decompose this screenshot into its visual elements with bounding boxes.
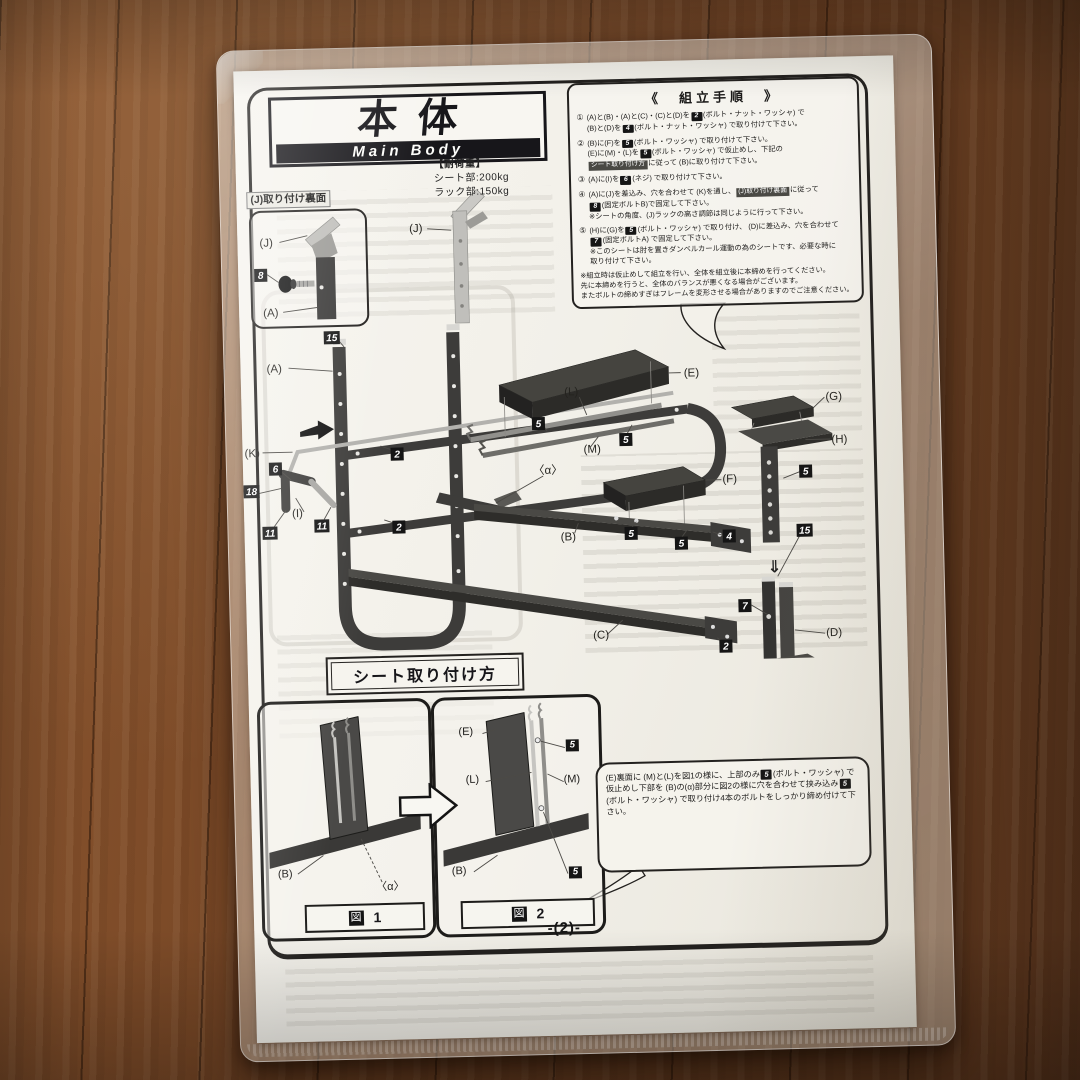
inline-part-number: 5: [640, 150, 651, 159]
inline-section-ref: (J)取り付け裏面: [736, 187, 789, 197]
part-label-a: (A): [266, 363, 282, 375]
fig-transition-arrow-icon: [398, 782, 459, 829]
fig-mark: 図: [348, 910, 363, 925]
jbox-heading: (J)取り付け裏面: [246, 190, 330, 209]
part-label-b: (B): [561, 531, 577, 543]
part-label-i: (I): [292, 508, 303, 520]
assembly-steps-box: 《 組立手順 》 ①(A)と(B)・(A)と(C)・(C)と(D)を2(ボルト・…: [567, 76, 864, 309]
part-number-badge: 5: [532, 417, 545, 430]
fig2-label-m: (M): [564, 773, 581, 785]
part-number-badge: 6: [269, 462, 282, 475]
step-text: (A)に(I)を6(ネジ) で取り付けて下さい。: [588, 172, 727, 186]
part-label-e: (E): [684, 367, 700, 379]
j-rack-drawing: [450, 189, 490, 323]
svg-text:5: 5: [536, 419, 542, 430]
part-number-badge: 2: [392, 520, 405, 533]
inline-part-number: 6: [620, 176, 631, 185]
seat-attach-heading: シート取り付け方: [331, 658, 520, 691]
part-label-m: (M): [583, 444, 601, 456]
svg-text:4: 4: [725, 531, 732, 542]
seat-attach-heading-box: シート取り付け方: [326, 653, 525, 696]
svg-text:11: 11: [317, 521, 328, 532]
part-label-alpha: 〈α〉: [533, 464, 563, 478]
step-text: (A)に(J)を差込み、穴を合わせて (K)を通し、(J)取り付け裏面に従って8…: [588, 184, 819, 221]
jbox-label-j: (J): [259, 238, 273, 250]
instruction-sheet: 本体 Main Body 【耐荷重】 シート部:200kg ラック部:150kg…: [233, 55, 917, 1043]
preacher-bracket-drawing: [738, 419, 835, 543]
seat-pad-drawing: [603, 466, 706, 511]
inline-part-number: 8: [590, 203, 601, 212]
rear-upright-drawing: [744, 575, 833, 671]
inline-part-number: 5: [839, 779, 850, 789]
fig-mark: 図: [511, 906, 526, 921]
part-label-j: (J): [409, 223, 423, 235]
i-handle-drawing: [283, 473, 334, 508]
page-title: 本体: [270, 96, 545, 144]
part-label-c: (C): [593, 629, 609, 641]
part-number-badge: 7: [738, 599, 751, 612]
part-number-badge: 11: [314, 519, 329, 532]
assembly-step-5: ⑤(H)に(G)を5(ボルト・ワッシャ) で取り付け、 (D)に差込み、穴を合わ…: [579, 219, 854, 266]
part-number-badge: 5: [619, 433, 632, 446]
svg-text:11: 11: [265, 529, 276, 540]
svg-text:5: 5: [628, 529, 634, 540]
jbox-detail: (J) 8 (A): [249, 208, 370, 329]
step-number: ④: [578, 190, 586, 221]
step-number: ②: [577, 139, 585, 171]
part-number-badge: 4: [723, 529, 736, 542]
fig2-label-e: (E): [458, 726, 473, 738]
part-number-badge: 8: [254, 269, 267, 282]
part-number-badge: 5: [624, 527, 637, 540]
assembly-steps-list: ①(A)と(B)・(A)と(C)・(C)と(D)を2(ボルト・ナット・ワッシャ)…: [576, 106, 854, 266]
inline-part-number: 2: [691, 112, 702, 121]
assembly-step-3: ③(A)に(I)を6(ネジ) で取り付けて下さい。: [578, 169, 852, 186]
part-number-badge: 5: [675, 537, 688, 550]
fig1-label-b: (B): [278, 868, 293, 880]
svg-text:8: 8: [258, 271, 264, 282]
step-text: (H)に(G)を5(ボルト・ワッシャ) で取り付け、 (D)に差込み、穴を合わせ…: [589, 220, 839, 267]
jbox-label-a: (A): [263, 307, 279, 319]
part-number-badge: 15: [324, 331, 340, 344]
seat-attach-note-bubble: (E)裏面に (M)と(L)を図1の様に、上部のみ5(ボルト・ワッシャ) で仮止…: [595, 756, 872, 873]
page-number: -(2)-: [514, 918, 614, 937]
part-number-badge: 2: [390, 447, 403, 460]
inline-part-number: 5: [622, 139, 633, 148]
assembly-step-4: ④(A)に(J)を差込み、穴を合わせて (K)を通し、(J)取り付け裏面に従って…: [578, 184, 853, 222]
fig2-label-b: (B): [452, 865, 467, 877]
arrow-right-icon: [300, 420, 334, 440]
svg-text:2: 2: [393, 450, 400, 461]
step-text: (A)と(B)・(A)と(C)・(C)と(D)を2(ボルト・ナット・ワッシャ) …: [587, 108, 806, 135]
part-label-d: (D): [826, 627, 842, 639]
fig2-label-l: (L): [465, 774, 479, 786]
svg-text:7: 7: [742, 601, 748, 612]
assembly-step-1: ①(A)と(B)・(A)と(C)・(C)と(D)を2(ボルト・ナット・ワッシャ)…: [576, 106, 850, 134]
svg-text:2: 2: [395, 522, 402, 533]
inline-section-ref: シート取り付け方: [589, 160, 648, 170]
inline-part-number: 5: [761, 770, 772, 780]
inline-part-number: 4: [622, 124, 633, 133]
fig2-badge-5: 5: [566, 739, 579, 751]
part-number-badge: 5: [799, 464, 812, 477]
svg-text:18: 18: [246, 487, 258, 498]
part-label-k: (K): [244, 448, 260, 460]
assembly-heading: 《 組立手順 》: [576, 83, 850, 109]
part-number-badge: 15: [796, 523, 812, 536]
step-number: ①: [576, 113, 584, 134]
part-number-badge: 2: [719, 639, 732, 652]
svg-text:2: 2: [722, 642, 729, 653]
svg-text:5: 5: [623, 435, 629, 446]
inline-part-number: 5: [626, 227, 637, 236]
assembly-notes: ※組立時は仮止めして組立を行い、全体を組立後に本締めを行ってください。 先に本締…: [580, 264, 855, 300]
svg-text:6: 6: [273, 464, 279, 475]
part-label-h: (H): [831, 434, 847, 446]
step-number: ⑤: [579, 226, 587, 267]
assembly-step-2: ②(B)に(F)を5(ボルト・ワッシャ) で取り付けて下さい。(E)に(M)・(…: [577, 132, 852, 171]
part-label-g: (G): [825, 391, 842, 403]
a-post-drawing: [316, 257, 337, 319]
part-number-badge: 11: [262, 527, 277, 540]
photo-scene: 本体 Main Body 【耐荷重】 シート部:200kg ラック部:150kg…: [216, 33, 957, 1062]
step-number: ③: [578, 175, 585, 186]
fig2-badge-5: 5: [569, 866, 582, 878]
svg-text:5: 5: [803, 467, 809, 478]
step-text: (B)に(F)を5(ボルト・ワッシャ) で取り付けて下さい。(E)に(M)・(L…: [587, 134, 783, 171]
bleed-through-ghost: [285, 948, 874, 1026]
svg-text:5: 5: [679, 539, 685, 550]
figure-1-caption: 図 1: [305, 902, 426, 933]
inline-part-number: 7: [591, 238, 602, 247]
part-label-f: (F): [722, 473, 737, 485]
part-label-l: (L): [564, 386, 579, 398]
svg-text:15: 15: [326, 333, 338, 344]
svg-text:15: 15: [799, 526, 811, 537]
part-number-badge: 18: [243, 485, 259, 498]
a-frame-holes: [337, 354, 461, 586]
fig1-label-alpha: 〈α〉: [376, 878, 405, 895]
